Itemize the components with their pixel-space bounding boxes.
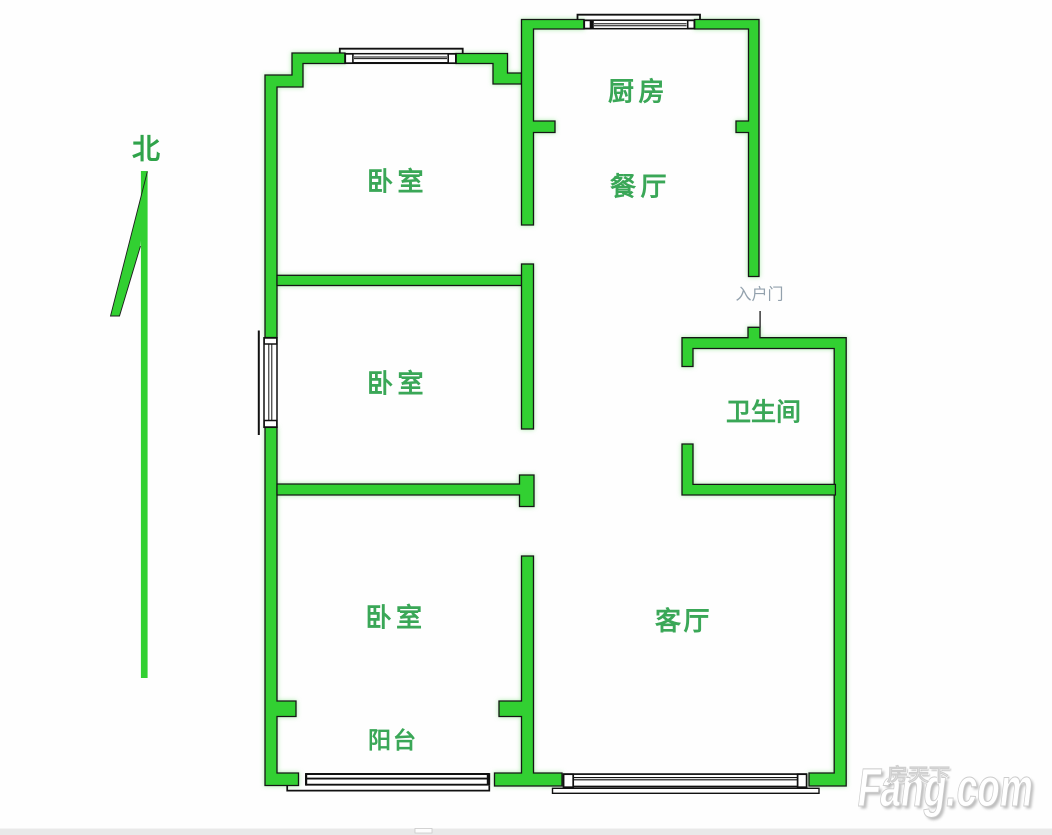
svg-text:入户门: 入户门 bbox=[736, 286, 784, 304]
svg-text:房天下: 房天下 bbox=[887, 764, 950, 785]
svg-text:客厅: 客厅 bbox=[655, 606, 712, 636]
svg-text:阳台: 阳台 bbox=[368, 727, 418, 753]
svg-text:卧室: 卧室 bbox=[367, 369, 428, 399]
svg-text:餐厅: 餐厅 bbox=[610, 172, 671, 202]
svg-text:卧室: 卧室 bbox=[366, 602, 427, 632]
svg-text:北: 北 bbox=[132, 134, 160, 165]
svg-text:卧室: 卧室 bbox=[367, 167, 428, 197]
svg-text:卫生间: 卫生间 bbox=[726, 399, 801, 427]
svg-text:厨房: 厨房 bbox=[608, 77, 669, 107]
